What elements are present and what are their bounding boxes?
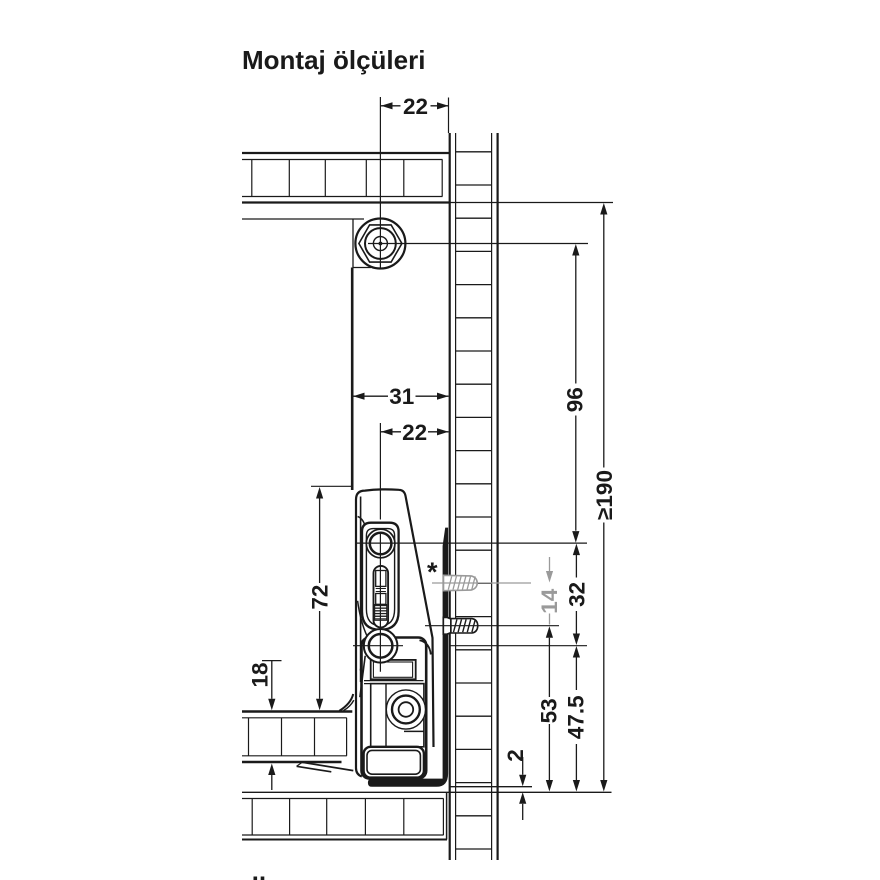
svg-text:14: 14 (537, 588, 562, 614)
svg-text:31: 31 (389, 384, 414, 409)
svg-text:72: 72 (308, 585, 333, 610)
svg-text:22: 22 (402, 420, 427, 445)
svg-text:96: 96 (562, 387, 587, 412)
svg-text:18: 18 (247, 662, 272, 687)
svg-text:2: 2 (503, 749, 528, 762)
svg-text:32: 32 (565, 582, 590, 607)
svg-text:Montaj ölçüleri: Montaj ölçüleri (242, 45, 425, 75)
svg-text:53: 53 (537, 698, 562, 723)
svg-text:≥190: ≥190 (592, 470, 617, 520)
svg-text:22: 22 (403, 94, 428, 119)
svg-text:*: * (427, 557, 438, 587)
svg-text:47.5: 47.5 (563, 695, 588, 739)
